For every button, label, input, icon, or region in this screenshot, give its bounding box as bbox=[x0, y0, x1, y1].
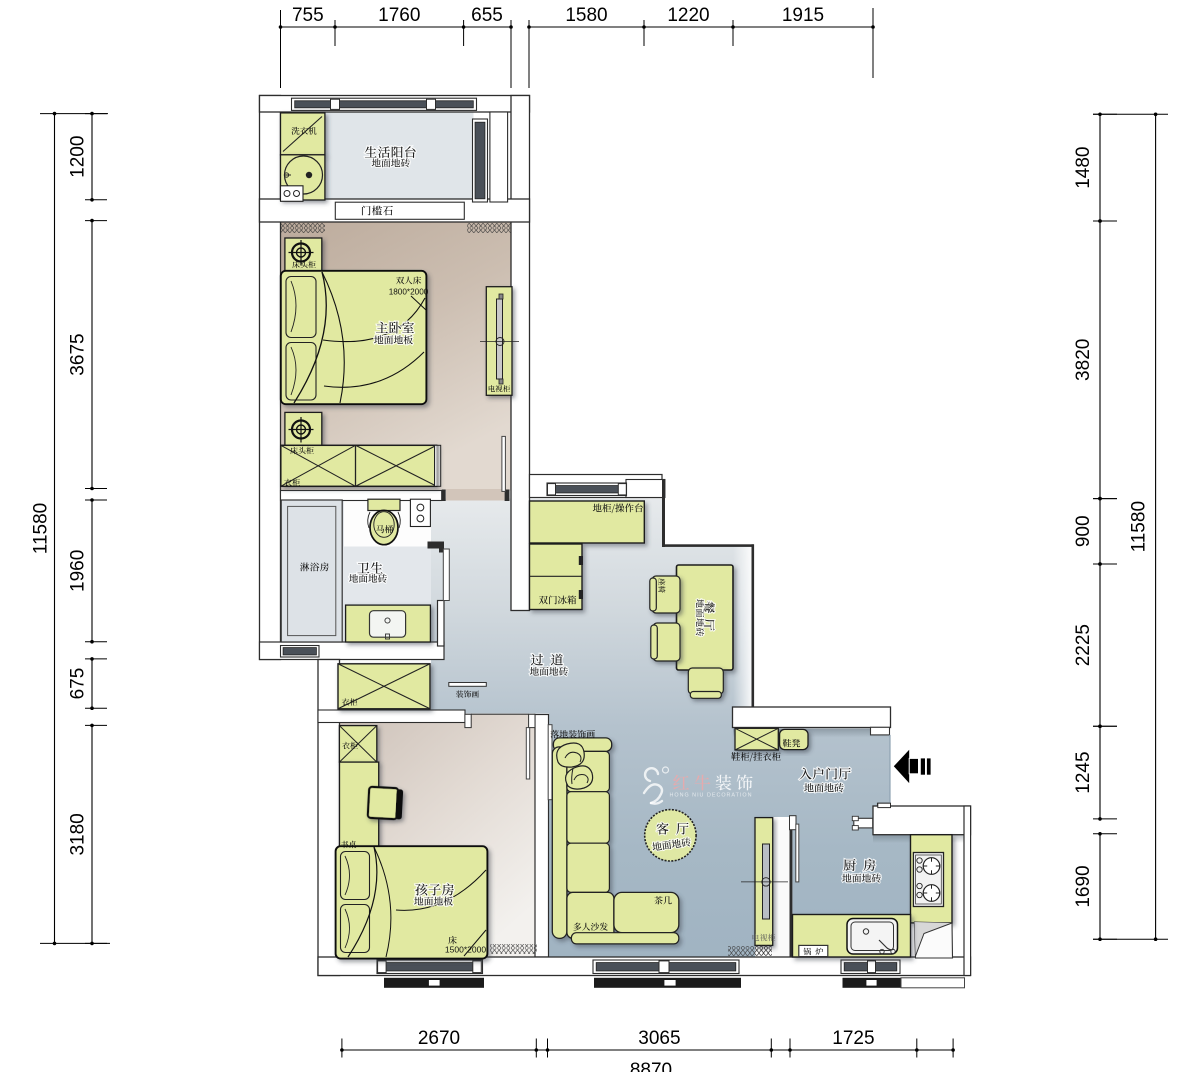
svg-text:900: 900 bbox=[1073, 515, 1094, 547]
svg-text:2670: 2670 bbox=[418, 1028, 460, 1049]
svg-text:3065: 3065 bbox=[638, 1028, 680, 1049]
svg-text:3180: 3180 bbox=[68, 813, 89, 855]
svg-text:1480: 1480 bbox=[1073, 147, 1094, 189]
svg-text:1245: 1245 bbox=[1073, 751, 1094, 793]
svg-text:1800*2000: 1800*2000 bbox=[389, 288, 429, 297]
svg-text:1690: 1690 bbox=[1073, 865, 1094, 907]
svg-text:2225: 2225 bbox=[1073, 624, 1094, 666]
svg-text:11580: 11580 bbox=[1129, 501, 1150, 552]
svg-text:11580: 11580 bbox=[31, 503, 52, 554]
svg-text:8870: 8870 bbox=[630, 1060, 672, 1072]
svg-text:3820: 3820 bbox=[1073, 339, 1094, 381]
svg-text:1200: 1200 bbox=[68, 136, 89, 178]
svg-text:1915: 1915 bbox=[782, 5, 824, 26]
svg-text:HONG NIU DECORATION: HONG NIU DECORATION bbox=[670, 793, 753, 799]
svg-text:3675: 3675 bbox=[68, 333, 89, 375]
svg-text:755: 755 bbox=[292, 5, 324, 26]
svg-text:1580: 1580 bbox=[565, 5, 607, 26]
svg-text:1760: 1760 bbox=[378, 5, 420, 26]
svg-text:1220: 1220 bbox=[667, 5, 709, 26]
svg-text:1500*2000: 1500*2000 bbox=[445, 945, 486, 955]
svg-text:675: 675 bbox=[68, 668, 89, 700]
svg-text:655: 655 bbox=[471, 5, 503, 26]
svg-text:1960: 1960 bbox=[68, 550, 89, 592]
svg-text:1725: 1725 bbox=[832, 1028, 874, 1049]
